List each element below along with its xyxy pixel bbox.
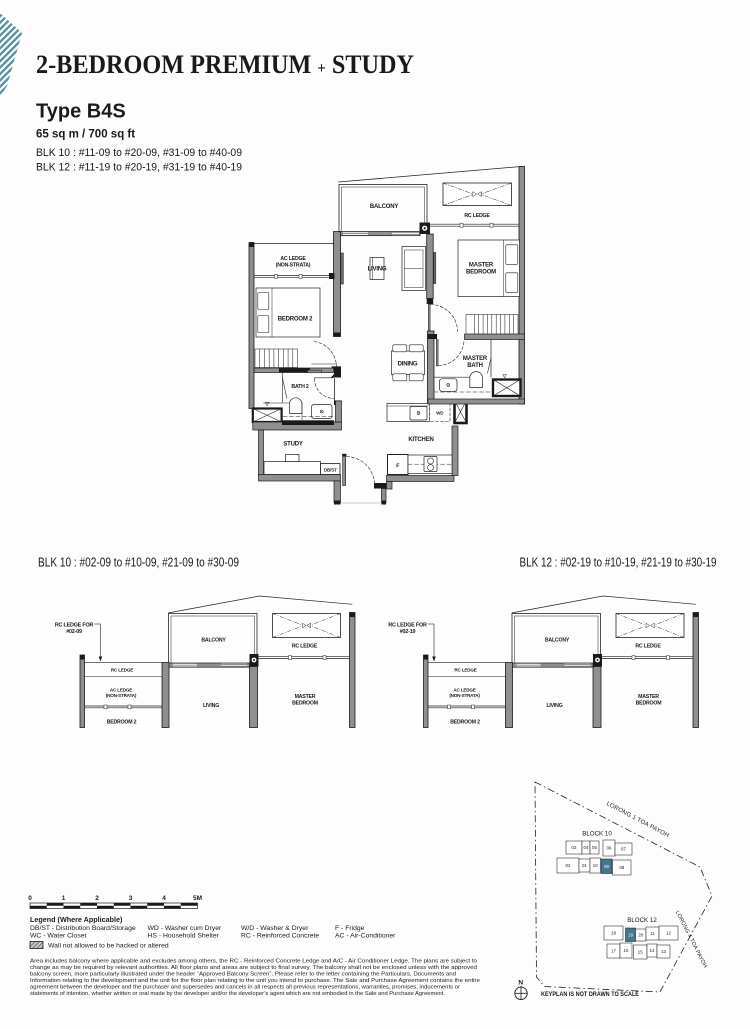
svg-text:DINING: DINING — [398, 362, 418, 368]
svg-text:LIVING: LIVING — [368, 267, 387, 273]
svg-text:15: 15 — [638, 950, 643, 955]
svg-text:RC LEDGE FOR: RC LEDGE FOR — [55, 623, 94, 629]
svg-text:change as may be required by r: change as may be required by relevant au… — [30, 965, 477, 971]
svg-text:AC LEDGE: AC LEDGE — [280, 256, 306, 262]
svg-text:BEDROOM: BEDROOM — [292, 701, 318, 707]
svg-text:agreement between the develope: agreement between the developer and the … — [30, 984, 460, 990]
svg-text:WD - Washer cum Dryer: WD - Washer cum Dryer — [148, 925, 222, 932]
svg-text:RC - Reinforced Concrete: RC - Reinforced Concrete — [241, 933, 319, 940]
svg-text:Type B4S: Type B4S — [36, 101, 126, 123]
svg-text:Legend (Where Applicable): Legend (Where Applicable) — [30, 915, 123, 924]
svg-text:HS - Household Shelter: HS - Household Shelter — [148, 933, 220, 940]
svg-text:13: 13 — [661, 949, 666, 954]
svg-text:BATH 2: BATH 2 — [291, 384, 308, 390]
svg-text:BLK 10 : #02-09 to #10-09, #21: BLK 10 : #02-09 to #10-09, #21-09 to #30… — [38, 556, 239, 570]
svg-text:KITCHEN: KITCHEN — [408, 437, 433, 443]
svg-text:14: 14 — [650, 948, 655, 953]
svg-text:F - Fridge: F - Fridge — [335, 925, 365, 932]
svg-text:3: 3 — [129, 895, 133, 902]
svg-text:Wall not allowed to be hacked: Wall not allowed to be hacked or altered — [48, 943, 169, 950]
svg-text:12: 12 — [666, 931, 671, 936]
svg-text:RC LEDGE: RC LEDGE — [454, 668, 476, 673]
svg-text:16: 16 — [624, 948, 629, 953]
svg-text:BEDROOM: BEDROOM — [466, 270, 496, 276]
svg-text:W/D - Washer & Dryer: W/D - Washer & Dryer — [241, 925, 309, 932]
svg-text:(NON-STRATA): (NON-STRATA) — [449, 693, 480, 698]
svg-text:KEYPLAN IS NOT DRAWN TO SCALE: KEYPLAN IS NOT DRAWN TO SCALE — [541, 991, 639, 998]
svg-text:02: 02 — [566, 863, 571, 868]
svg-text:05: 05 — [592, 845, 597, 850]
svg-text:01: 01 — [582, 863, 587, 868]
svg-text:RC LEDGE: RC LEDGE — [111, 668, 133, 673]
svg-text:RC LEDGE: RC LEDGE — [464, 213, 490, 219]
svg-text:BALCONY: BALCONY — [545, 638, 570, 644]
svg-text:5M: 5M — [193, 895, 202, 902]
svg-text:18: 18 — [611, 931, 616, 936]
svg-text:AC LEDGE: AC LEDGE — [453, 688, 475, 693]
svg-text:N: N — [518, 980, 523, 987]
svg-text:statements of intention, wheth: statements of intention, whether written… — [30, 991, 445, 997]
svg-text:STUDY: STUDY — [283, 442, 303, 448]
svg-text:BLK 12 : #11-19 to #20-19, #31: BLK 12 : #11-19 to #20-19, #31-19 to #40… — [36, 162, 242, 174]
svg-text:WC - Water Closet: WC - Water Closet — [30, 933, 87, 940]
svg-text:MASTER: MASTER — [295, 694, 316, 700]
svg-text:BATH: BATH — [467, 363, 482, 369]
svg-text:(NON-STRATA): (NON-STRATA) — [106, 693, 137, 698]
svg-text:BLK 10 : #11-09 to #20-09, #31: BLK 10 : #11-09 to #20-09, #31-09 to #40… — [36, 147, 242, 159]
svg-text:65 sq m / 700 sq ft: 65 sq m / 700 sq ft — [36, 129, 135, 141]
svg-text:LIVING: LIVING — [546, 703, 562, 709]
svg-text:BEDROOM 2: BEDROOM 2 — [107, 720, 137, 726]
svg-text:06: 06 — [607, 846, 612, 851]
svg-text:09: 09 — [604, 864, 609, 869]
svg-text:Area includes balcony where ap: Area includes balcony where applicable a… — [30, 959, 477, 965]
svg-text:07: 07 — [621, 847, 626, 852]
svg-text:AC - Air-Conditioner: AC - Air-Conditioner — [335, 933, 396, 940]
svg-text:DB/ST: DB/ST — [324, 468, 337, 473]
svg-text:4: 4 — [162, 895, 166, 902]
svg-text:0: 0 — [28, 895, 32, 902]
svg-text:LIVING: LIVING — [203, 703, 219, 709]
svg-text:2: 2 — [95, 895, 99, 902]
svg-text:Information relating to the de: Information relating to the development … — [30, 978, 480, 984]
svg-text:20: 20 — [638, 933, 643, 938]
svg-text:11: 11 — [650, 931, 655, 936]
svg-text:MASTER: MASTER — [463, 356, 488, 362]
svg-text:BLOCK 10: BLOCK 10 — [582, 831, 612, 838]
svg-text:BALCONY: BALCONY — [201, 638, 226, 644]
svg-text:WD: WD — [436, 411, 444, 416]
svg-text:19: 19 — [628, 933, 633, 938]
svg-text:BEDROOM 2: BEDROOM 2 — [450, 720, 480, 726]
svg-text:balcony screen, more particula: balcony screen, more particularly illust… — [30, 971, 456, 977]
svg-text:RC LEDGE FOR: RC LEDGE FOR — [388, 623, 427, 629]
svg-text:RC LEDGE: RC LEDGE — [292, 644, 318, 650]
svg-text:BLK 12 : #02-19 to #10-19, #21: BLK 12 : #02-19 to #10-19, #21-19 to #30… — [520, 556, 717, 570]
svg-text:MASTER: MASTER — [638, 694, 659, 700]
svg-text:BEDROOM: BEDROOM — [636, 701, 662, 707]
svg-text:BALCONY: BALCONY — [370, 204, 398, 210]
svg-text:2-BEDROOM PREMIUM + STUDY: 2-BEDROOM PREMIUM + STUDY — [36, 50, 414, 79]
svg-text:08: 08 — [619, 865, 624, 870]
svg-text:03: 03 — [572, 845, 577, 850]
svg-text:1: 1 — [62, 895, 66, 902]
svg-text:AC LEDGE: AC LEDGE — [110, 688, 132, 693]
svg-text:DB/ST - Distribution Board/Sto: DB/ST - Distribution Board/Storage — [30, 925, 136, 932]
svg-text:BEDROOM 2: BEDROOM 2 — [278, 317, 313, 323]
svg-text:BLOCK 12: BLOCK 12 — [627, 917, 657, 924]
svg-text:04: 04 — [584, 845, 589, 850]
svg-text:MASTER: MASTER — [469, 263, 494, 269]
svg-text:#02-09: #02-09 — [66, 629, 82, 635]
svg-text:F: F — [396, 464, 399, 470]
svg-text:17: 17 — [611, 949, 616, 954]
svg-text:#02-19: #02-19 — [400, 629, 416, 635]
svg-text:(NON-STRATA): (NON-STRATA) — [276, 263, 311, 269]
svg-text:RC LEDGE: RC LEDGE — [635, 644, 661, 650]
svg-text:10: 10 — [593, 863, 598, 868]
